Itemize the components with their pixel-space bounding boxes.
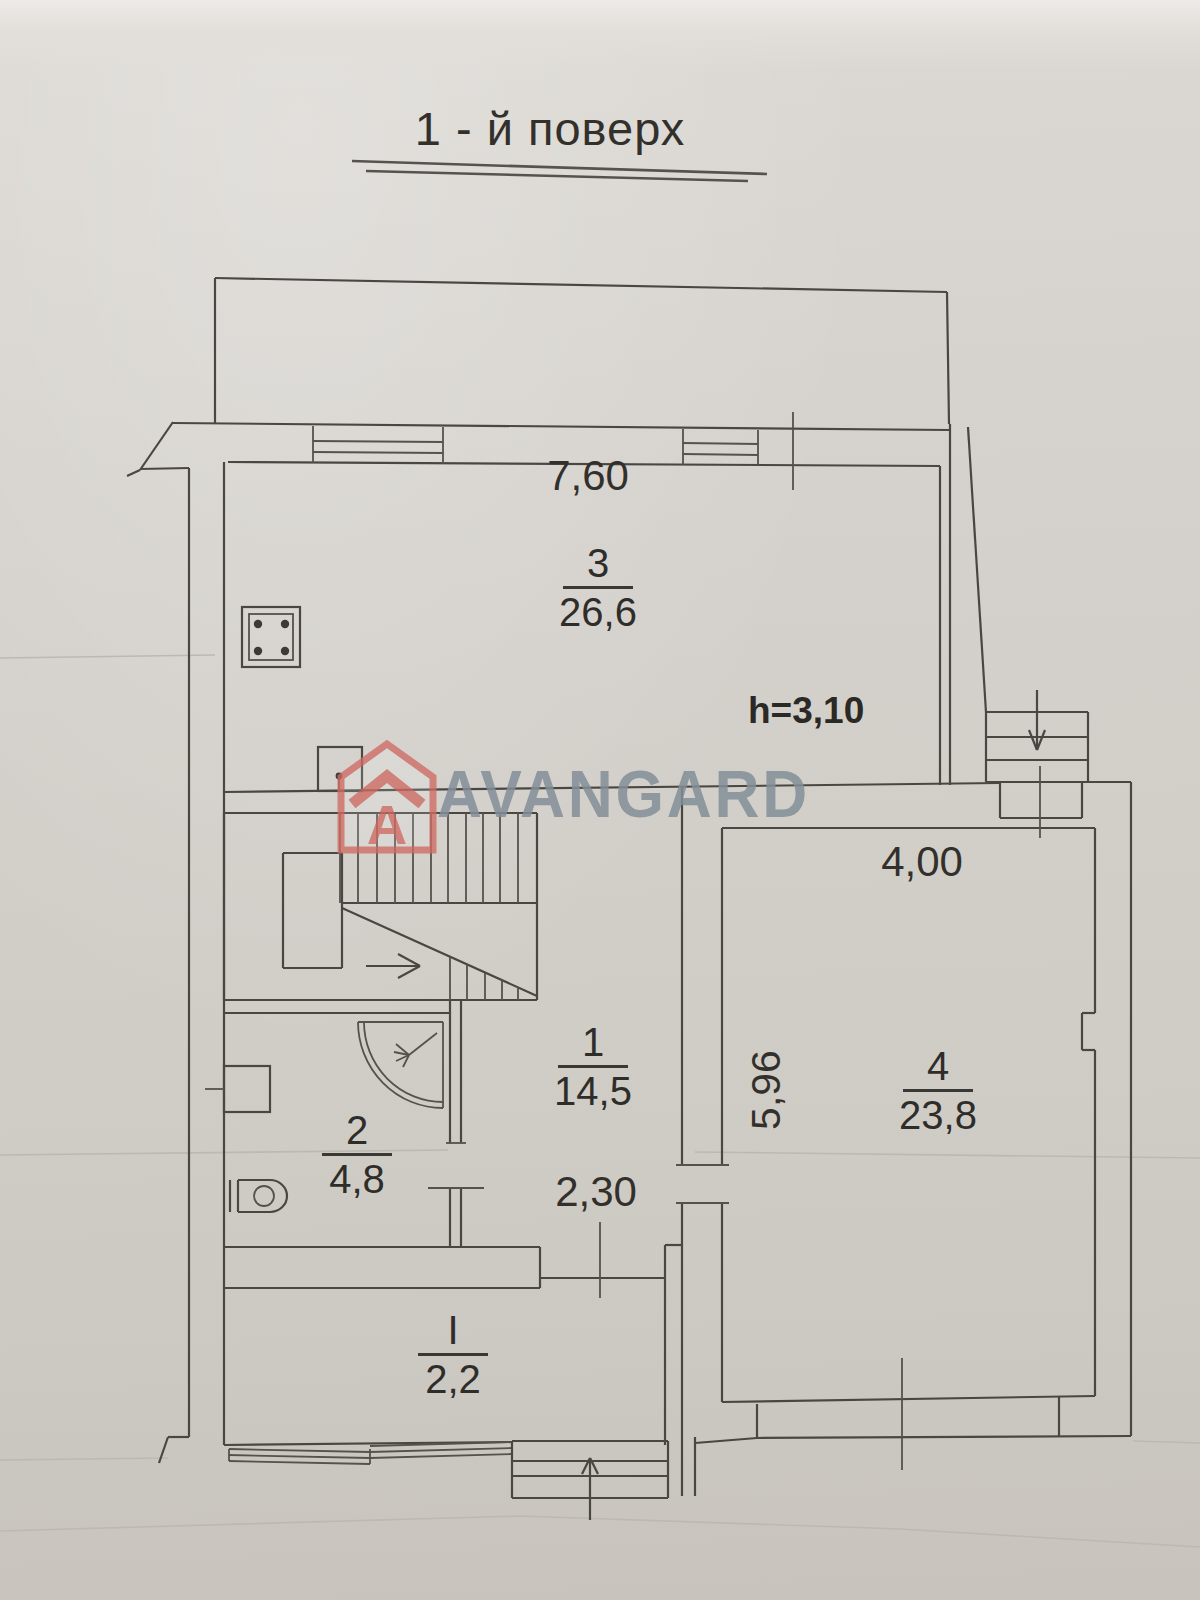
logo-letter: A — [367, 793, 407, 855]
sink-symbol — [205, 1066, 270, 1112]
ceiling-height-note: h=3,10 — [748, 690, 864, 732]
fraction-bar — [903, 1089, 973, 1092]
fraction-bar — [563, 586, 633, 589]
room4-number: 4 — [897, 1046, 979, 1087]
room1-label: 1 14,5 — [552, 1022, 634, 1112]
fraction-bar — [418, 1353, 488, 1356]
dim-hall-width: 2,30 — [555, 1168, 637, 1216]
chimney-column-symbol — [242, 607, 300, 667]
entry-room-number: I — [412, 1310, 494, 1351]
title-underline — [352, 161, 767, 181]
dim-room4-depth: 5,96 — [743, 1050, 790, 1130]
shower-symbol — [358, 1022, 443, 1108]
room3-area: 26,6 — [557, 592, 639, 633]
room4-label: 4 23,8 — [897, 1046, 979, 1136]
room3-label: 3 26,6 — [557, 543, 639, 633]
dim-room4-width: 4,00 — [881, 838, 963, 886]
entry-room-area: 2,2 — [412, 1359, 494, 1400]
entrance-porch-steps — [512, 1437, 757, 1498]
fraction-bar — [322, 1153, 392, 1156]
room2-label: 2 4,8 — [316, 1110, 398, 1200]
toilet-symbol — [230, 1180, 287, 1212]
fraction-bar — [558, 1065, 628, 1068]
watermark-brand-text: AVANGARD — [437, 760, 810, 827]
room1-area: 14,5 — [552, 1071, 634, 1112]
room2-number: 2 — [316, 1110, 398, 1151]
external-stairs-arrow-down — [1029, 690, 1045, 750]
page-title: 1 - й поверх — [415, 101, 686, 156]
entry-room-label: I 2,2 — [412, 1310, 494, 1400]
stair-direction-arrow — [366, 954, 420, 978]
room2-area: 4,8 — [316, 1159, 398, 1200]
entrance-arrow-up — [582, 1458, 598, 1520]
avangard-house-logo-icon: A — [337, 740, 437, 855]
room1-number: 1 — [552, 1022, 634, 1063]
room4-area: 23,8 — [897, 1095, 979, 1136]
terrace-outline — [215, 278, 949, 424]
dim-room3-width: 7,60 — [547, 452, 629, 500]
room3-number: 3 — [557, 543, 639, 584]
